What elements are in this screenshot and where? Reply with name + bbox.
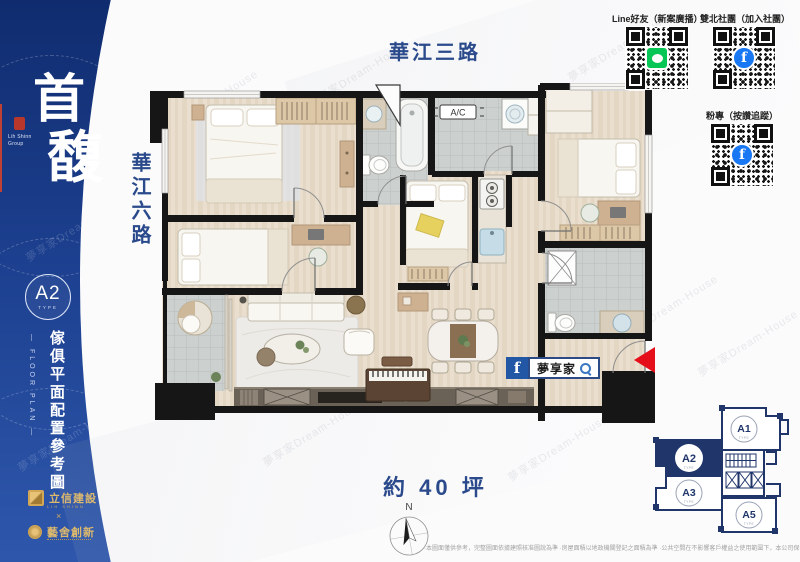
brand-logo: 馥 [47,130,103,186]
qr-label-fb-page: 粉專（按讚追蹤） [697,109,787,122]
red-accent-line [0,104,2,192]
unit-type-label: A2 [35,284,60,303]
facebook-icon: f [730,143,754,167]
disclaimer-text: ·本圖面僅供參考，完整圖面依據建照核准圖說為準 ·房屋面積以地政機關登記之面積為… [424,543,800,552]
brand-group-name: Lih Shinn Group [8,134,32,148]
qr-finder [713,27,732,46]
facebook-search-banner: f 夢享家 [506,357,600,379]
facebook-icon: f [732,46,756,70]
line-icon [645,46,669,70]
qr-label-fb-group: 雙北社團（加入社團） [700,12,790,25]
partner-logo: 藝舍創新 [28,524,95,540]
search-box: 夢享家 [528,357,600,379]
partner-name: 藝舍創新 [47,524,95,540]
seal-icon [14,117,25,130]
qr-finder [713,70,732,89]
qr-finder [626,27,645,46]
builder-name-en: LIH SHINN [47,504,85,509]
svg-text:TYPE: TYPE [684,466,694,470]
road-label-top: 華江三路 [389,36,481,65]
svg-text:A3: A3 [682,487,696,499]
svg-text:TYPE: TYPE [744,522,754,526]
qr-finder [711,124,730,143]
builder-icon [28,490,44,506]
search-text: 夢享家 [537,360,576,377]
brand-separator: × [56,511,61,521]
qr-code-fb-page: f [710,123,774,187]
partner-icon [28,525,42,539]
brand-group-line: Group [8,141,32,148]
svg-text:N: N [405,502,412,513]
facebook-icon: f [506,357,528,379]
key-plan: A1 TYPE A2 TYPE A3 TYPE A5 TYPE [648,396,800,544]
brand-group-line: Lih Shinn [8,134,32,141]
qr-finder [669,27,688,46]
floor-plan-title-zh: 傢俱平面配置參考圖 [46,330,67,492]
entrance-arrow-icon [634,347,655,373]
floorplan-poster: 首 馥 Lih Shinn Group A2 TYPE — FLOOR PLAN… [0,0,800,562]
facebook-letter: f [514,359,520,377]
road-label-left: 華江六路 [125,152,154,248]
svg-text:A1: A1 [737,423,751,435]
floor-plan-title-en: — FLOOR PLAN — [28,334,35,438]
svg-text:TYPE: TYPE [739,436,749,440]
ac-balcony [502,99,528,129]
living-room [236,293,374,389]
svg-text:TYPE: TYPE [684,500,694,504]
brand-logo: 首 [33,74,85,126]
qr-finder [626,70,645,89]
ac-label: A/C [434,105,484,119]
svg-text:A5: A5 [742,509,756,521]
qr-code-fb-group: f [712,26,776,90]
partner-tagline [47,539,91,540]
qr-finder [711,167,730,186]
qr-label-line: Line好友（新案廣播） [612,12,702,25]
qr-finder [756,27,775,46]
svg-text:A/C: A/C [450,108,466,118]
hall-cabinet [398,293,428,311]
magnifier-icon [580,363,591,374]
unit-type-badge: A2 TYPE [25,274,71,320]
dining-area [428,309,498,373]
svg-text:A2: A2 [682,453,696,465]
facebook-letter: f [741,50,747,66]
qr-code-line [625,26,689,90]
facebook-letter: f [739,147,745,163]
unit-type-sub: TYPE [38,305,58,310]
qr-finder [754,124,773,143]
floor-plan-drawing: A/C [150,83,655,440]
